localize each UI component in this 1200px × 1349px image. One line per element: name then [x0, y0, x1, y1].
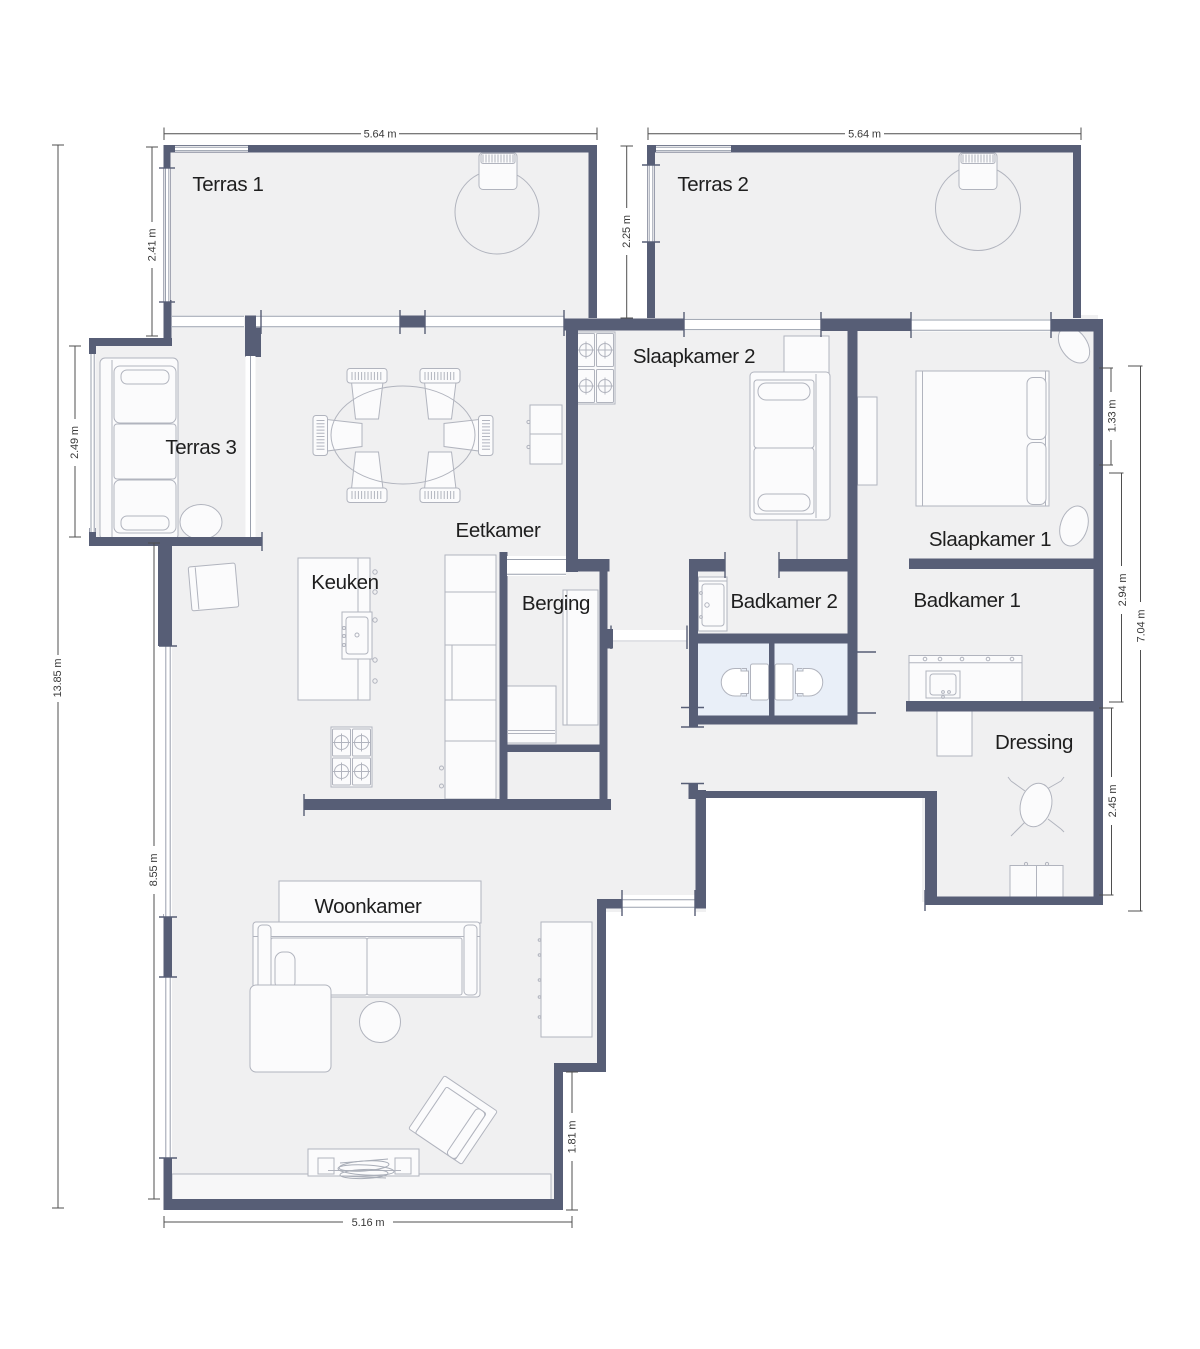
svg-text:2.25 m: 2.25 m [621, 215, 633, 248]
svg-text:13.85 m: 13.85 m [52, 659, 64, 698]
svg-text:Slaapkamer 2: Slaapkamer 2 [633, 345, 755, 368]
svg-text:Terras 3: Terras 3 [165, 436, 236, 459]
svg-text:Dressing: Dressing [995, 731, 1073, 754]
svg-text:5.64 m: 5.64 m [364, 129, 397, 141]
svg-text:Eetkamer: Eetkamer [456, 519, 541, 542]
svg-text:Woonkamer: Woonkamer [315, 895, 423, 918]
svg-text:Berging: Berging [522, 592, 590, 615]
svg-text:8.55 m: 8.55 m [148, 854, 160, 887]
svg-text:2.45 m: 2.45 m [1107, 785, 1119, 818]
svg-text:Keuken: Keuken [311, 571, 378, 594]
svg-text:Terras 2: Terras 2 [677, 173, 748, 196]
svg-text:Slaapkamer 1: Slaapkamer 1 [929, 528, 1051, 551]
svg-text:2.41 m: 2.41 m [147, 229, 159, 262]
svg-text:2.49 m: 2.49 m [69, 426, 81, 459]
svg-text:7.04 m: 7.04 m [1136, 610, 1148, 643]
svg-text:1.33 m: 1.33 m [1107, 400, 1119, 433]
svg-text:5.64 m: 5.64 m [848, 129, 881, 141]
svg-text:2.94 m: 2.94 m [1117, 574, 1129, 607]
svg-text:Badkamer 2: Badkamer 2 [730, 590, 837, 613]
svg-text:5.16 m: 5.16 m [352, 1217, 385, 1229]
svg-text:Terras 1: Terras 1 [192, 173, 263, 196]
svg-text:Badkamer 1: Badkamer 1 [913, 589, 1020, 612]
svg-text:1.81 m: 1.81 m [567, 1121, 579, 1154]
